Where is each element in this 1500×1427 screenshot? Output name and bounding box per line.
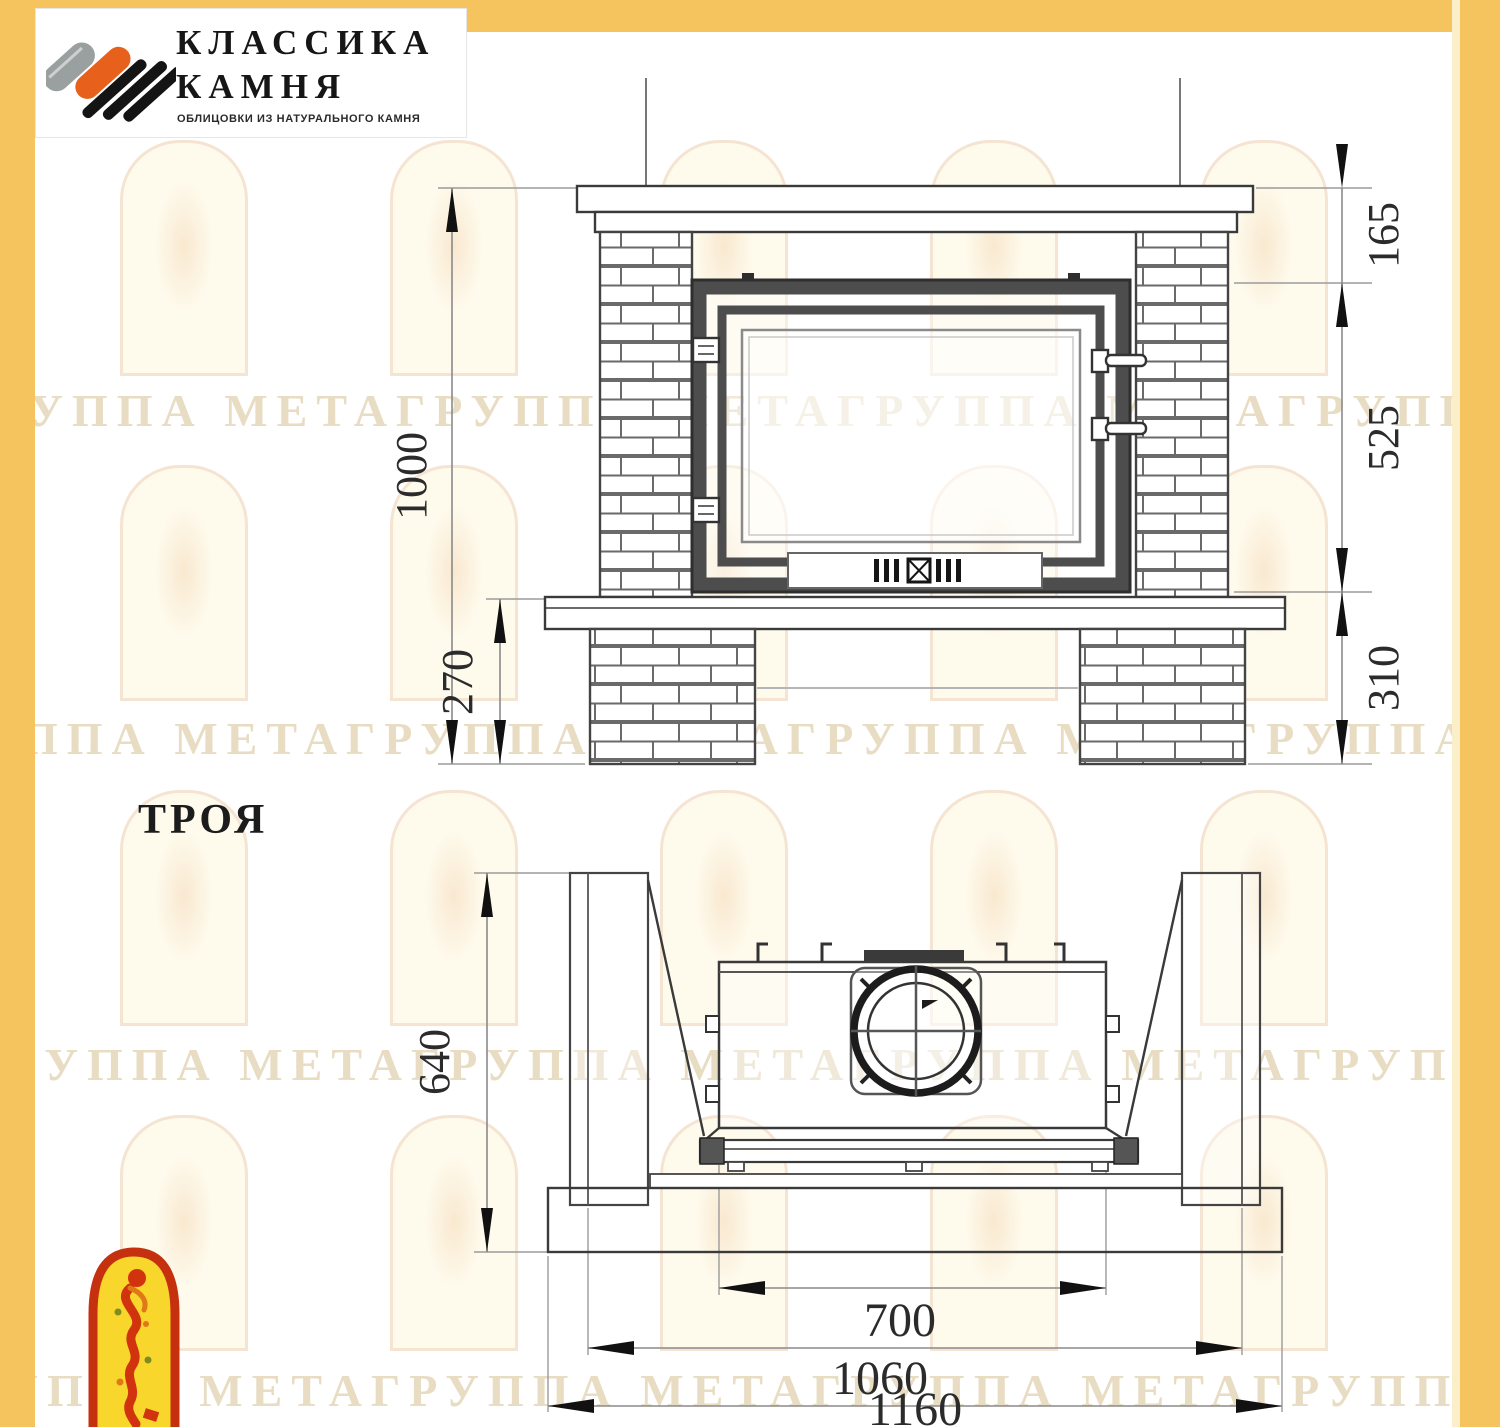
mantel-shelf-step bbox=[595, 212, 1237, 232]
firebox bbox=[692, 273, 1146, 592]
company-logo: КЛАССИКА КАМНЯ ОБЛИЦОВКИ ИЗ НАТУРАЛЬНОГО… bbox=[35, 8, 467, 138]
dim-total-height: 1000 bbox=[387, 432, 436, 520]
frame-right bbox=[1460, 0, 1500, 1427]
dim-pedestal-height: 270 bbox=[433, 649, 482, 715]
firebox-glass bbox=[742, 330, 1080, 542]
logo-subtitle: ОБЛИЦОВКИ ИЗ НАТУРАЛЬНОГО КАМНЯ bbox=[177, 113, 420, 125]
meta-arch-logo bbox=[84, 1240, 184, 1427]
right-pillar bbox=[1136, 232, 1228, 597]
dim-base-zone: 310 bbox=[1359, 645, 1408, 711]
logo-title-line2: КАМНЯ bbox=[176, 67, 347, 107]
technical-drawing: 1000 270 165 525 310 bbox=[0, 0, 1500, 1427]
plan-left-wall bbox=[570, 873, 648, 1205]
dim-firebox-width: 700 bbox=[864, 1294, 936, 1347]
dim-mantel-zone: 165 bbox=[1359, 202, 1408, 268]
front-view: 1000 270 165 525 310 bbox=[387, 78, 1408, 764]
dim-total-width: 1160 bbox=[868, 1383, 962, 1427]
plan-front-band bbox=[650, 1138, 1182, 1188]
company-logo-icon bbox=[46, 13, 176, 131]
dim-firebox-height: 525 bbox=[1359, 405, 1408, 471]
frame-left bbox=[0, 0, 35, 1427]
plan-base-slab bbox=[548, 1188, 1282, 1252]
dim-depth: 640 bbox=[410, 1029, 459, 1095]
right-pedestal bbox=[1080, 629, 1245, 764]
logo-title-line1: КЛАССИКА bbox=[176, 23, 435, 63]
plan-right-wall bbox=[1182, 873, 1260, 1205]
mantel-shelf-top bbox=[577, 186, 1253, 212]
plan-view: 640 700 1060 1160 bbox=[410, 873, 1282, 1427]
hearth-shelf bbox=[545, 597, 1285, 629]
flue-outlet bbox=[851, 966, 981, 1096]
left-pillar bbox=[600, 232, 692, 597]
left-pedestal bbox=[590, 629, 755, 764]
page: ГРУППА МЕТАГРУППА МЕТАГРУППА МЕТАГРУППА … bbox=[0, 0, 1500, 1427]
vent-grille bbox=[788, 553, 1042, 588]
chimney-lines bbox=[646, 78, 1180, 186]
frame-right-soft bbox=[1452, 0, 1460, 1427]
